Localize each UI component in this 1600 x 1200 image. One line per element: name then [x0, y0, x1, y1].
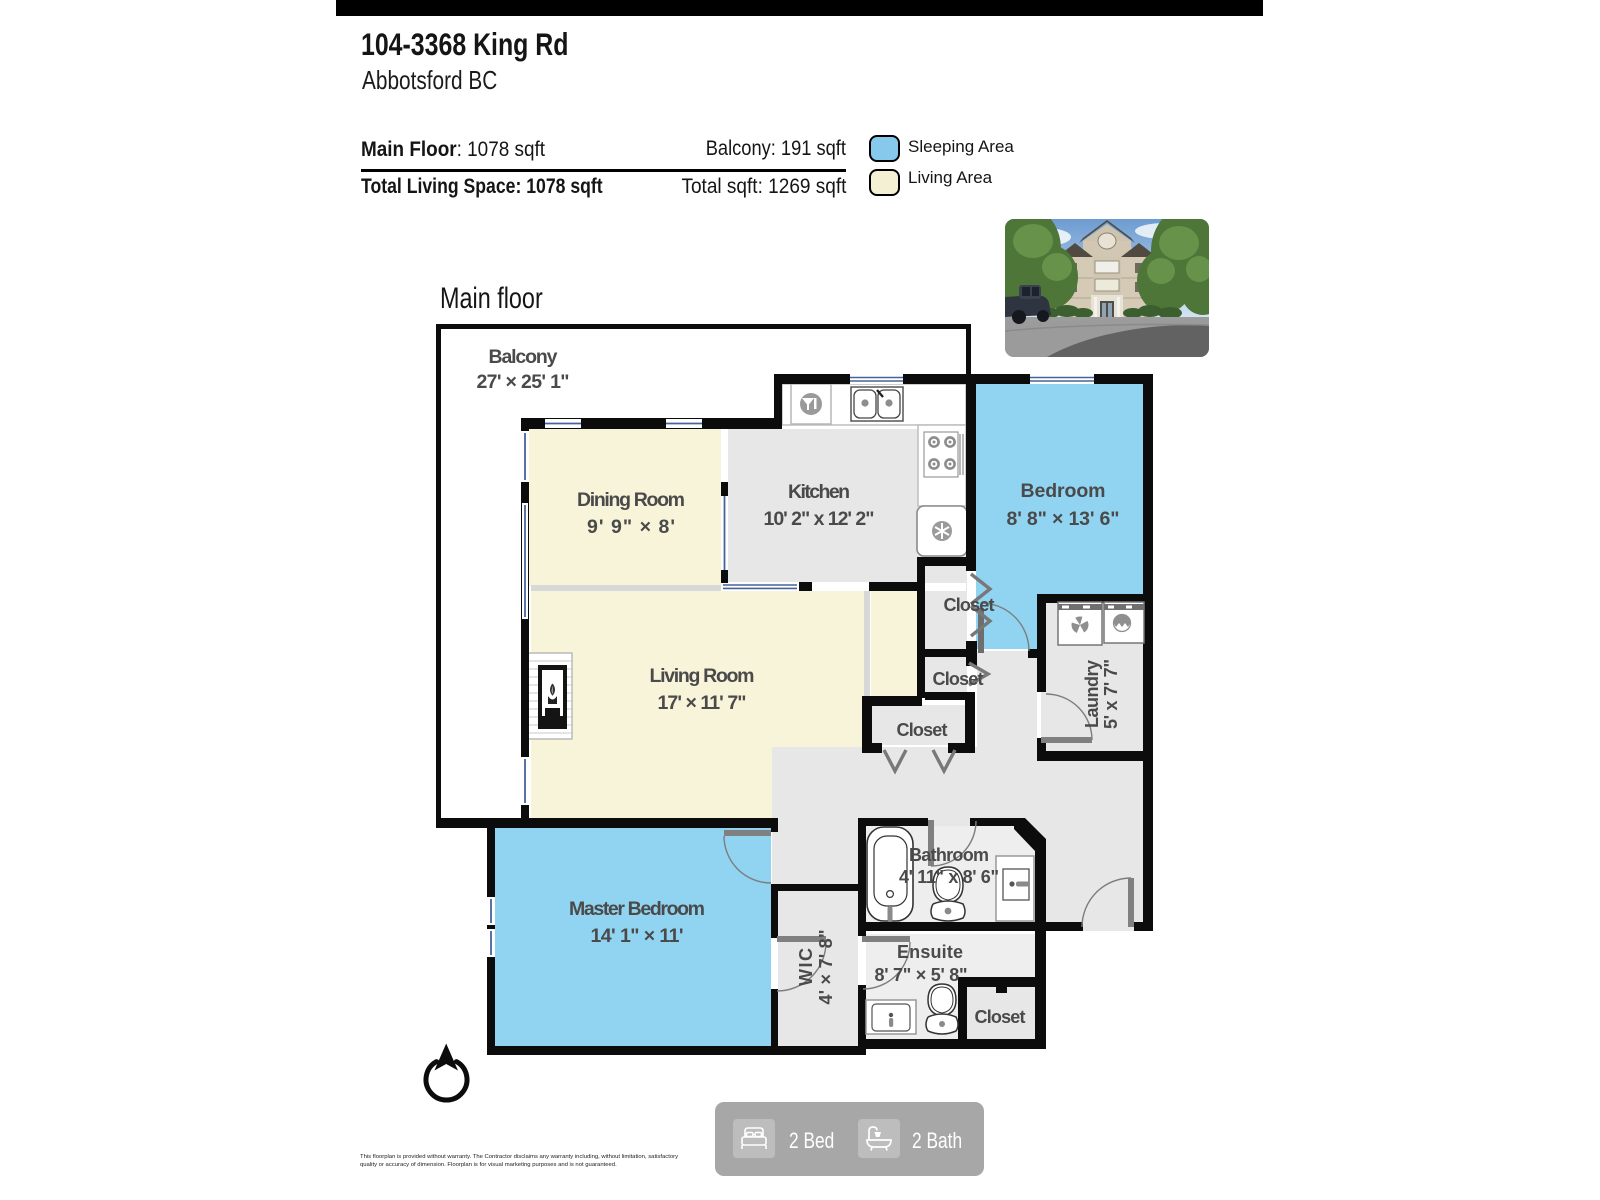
svg-text:4' × 7' 8": 4' × 7' 8" — [816, 930, 836, 1005]
svg-text:27' × 25' 1": 27' × 25' 1" — [477, 371, 570, 393]
svg-text:Closet: Closet — [975, 1007, 1026, 1027]
svg-text:WIC: WIC — [796, 948, 816, 986]
svg-text:9' 9" × 8': 9' 9" × 8' — [587, 516, 675, 538]
svg-text:4' 11" x 8' 6": 4' 11" x 8' 6" — [899, 867, 999, 887]
svg-text:Living Room: Living Room — [650, 665, 755, 687]
svg-text:8' 8" × 13' 6": 8' 8" × 13' 6" — [1007, 508, 1120, 530]
svg-text:Balcony: Balcony — [489, 346, 558, 368]
svg-text:Closet: Closet — [933, 669, 984, 689]
svg-text:Bathroom: Bathroom — [909, 845, 989, 865]
svg-text:Laundry: Laundry — [1082, 660, 1102, 728]
svg-text:Bedroom: Bedroom — [1021, 480, 1106, 502]
svg-text:Master Bedroom: Master Bedroom — [569, 898, 705, 920]
svg-text:10' 2" x 12' 2": 10' 2" x 12' 2" — [764, 508, 875, 530]
svg-text:Dining Room: Dining Room — [577, 489, 685, 511]
svg-text:Kitchen: Kitchen — [788, 481, 850, 503]
svg-text:Closet: Closet — [944, 595, 995, 615]
svg-text:Closet: Closet — [897, 720, 948, 740]
svg-text:8' 7" × 5' 8": 8' 7" × 5' 8" — [875, 965, 968, 985]
svg-text:14' 1" × 11': 14' 1" × 11' — [591, 925, 684, 947]
svg-text:17' × 11' 7": 17' × 11' 7" — [658, 692, 747, 714]
svg-text:5' x 7' 7": 5' x 7' 7" — [1101, 659, 1121, 729]
svg-text:Ensuite: Ensuite — [897, 942, 963, 962]
